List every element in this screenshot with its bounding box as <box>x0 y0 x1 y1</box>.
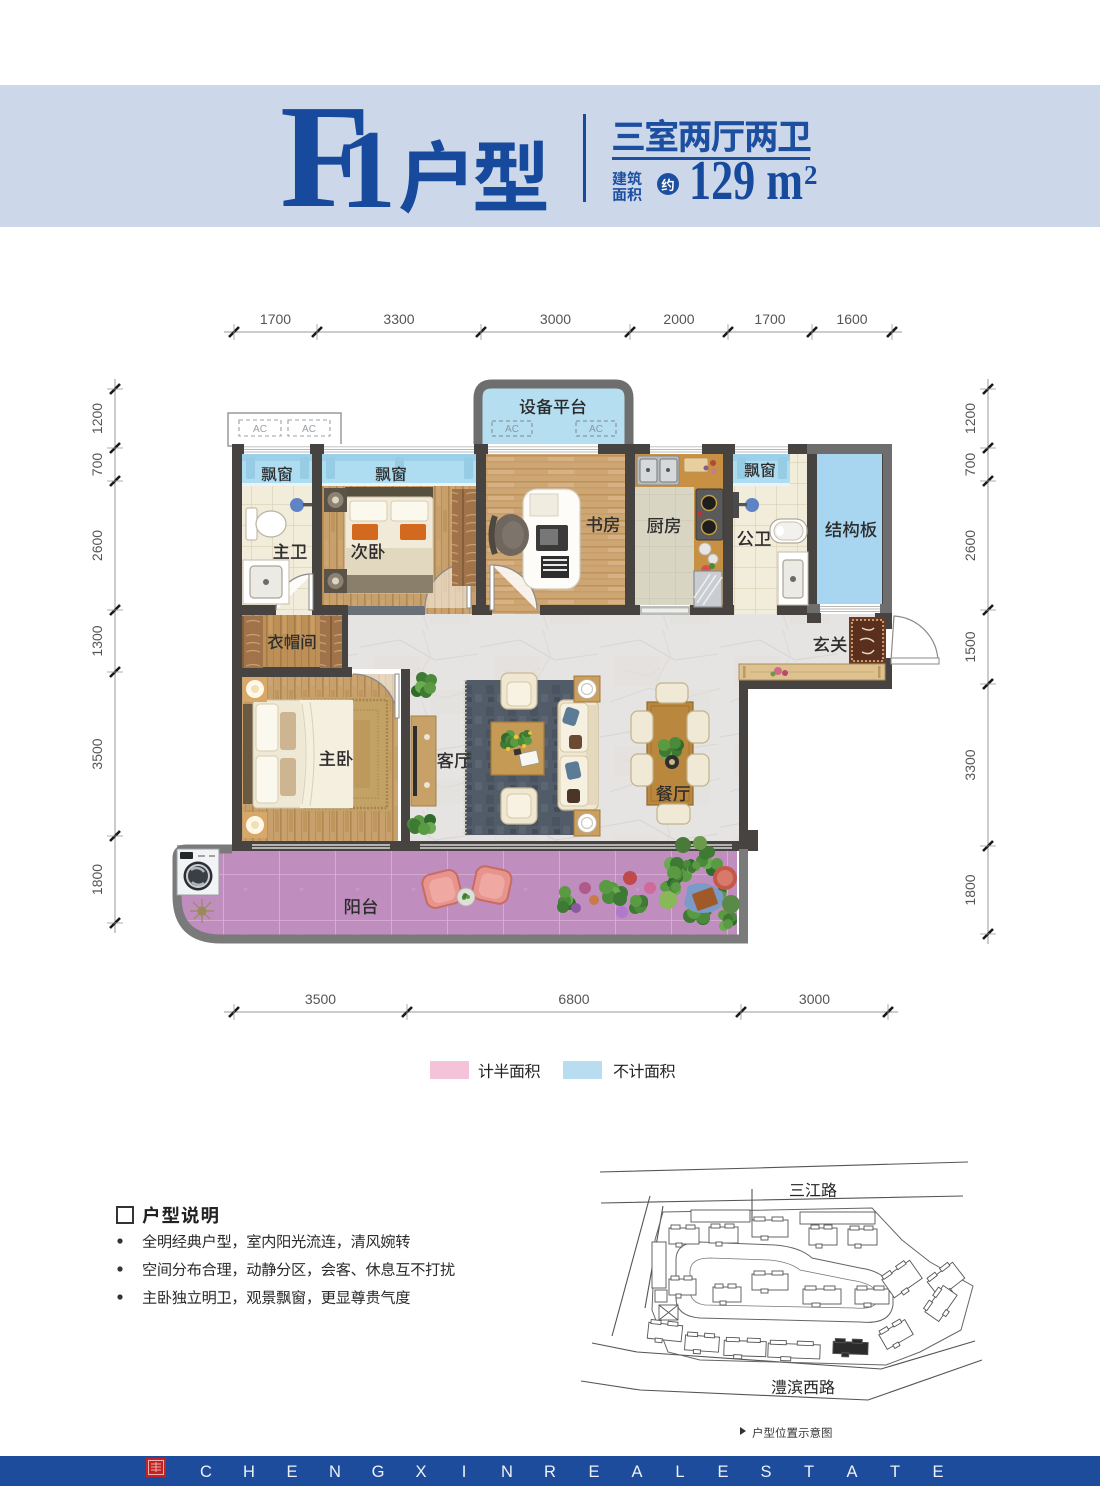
svg-text:1300: 1300 <box>89 625 105 656</box>
svg-text:1700: 1700 <box>754 311 785 327</box>
svg-text:3300: 3300 <box>962 749 978 780</box>
svg-text:6800: 6800 <box>558 991 589 1007</box>
svg-text:2000: 2000 <box>663 311 694 327</box>
svg-text:1200: 1200 <box>962 403 978 434</box>
svg-text:129 m: 129 m <box>689 150 803 212</box>
svg-text:1700: 1700 <box>260 311 291 327</box>
svg-text:1600: 1600 <box>836 311 867 327</box>
svg-text:AC: AC <box>302 424 316 435</box>
svg-text:AC: AC <box>505 424 519 435</box>
svg-text:3500: 3500 <box>89 738 105 769</box>
svg-text:3500: 3500 <box>305 991 336 1007</box>
svg-text:1200: 1200 <box>89 403 105 434</box>
svg-text:AC: AC <box>253 424 267 435</box>
svg-text:1500: 1500 <box>962 631 978 662</box>
svg-text:3000: 3000 <box>540 311 571 327</box>
svg-text:2600: 2600 <box>962 530 978 561</box>
svg-text:3300: 3300 <box>383 311 414 327</box>
svg-text:2: 2 <box>804 160 818 190</box>
svg-text:700: 700 <box>962 453 978 477</box>
svg-text:3000: 3000 <box>799 991 830 1007</box>
svg-text:700: 700 <box>89 453 105 477</box>
svg-text:AC: AC <box>589 424 603 435</box>
svg-text:1: 1 <box>340 108 396 232</box>
svg-text:1800: 1800 <box>89 864 105 895</box>
svg-text:1800: 1800 <box>962 874 978 905</box>
svg-text:2600: 2600 <box>89 530 105 561</box>
